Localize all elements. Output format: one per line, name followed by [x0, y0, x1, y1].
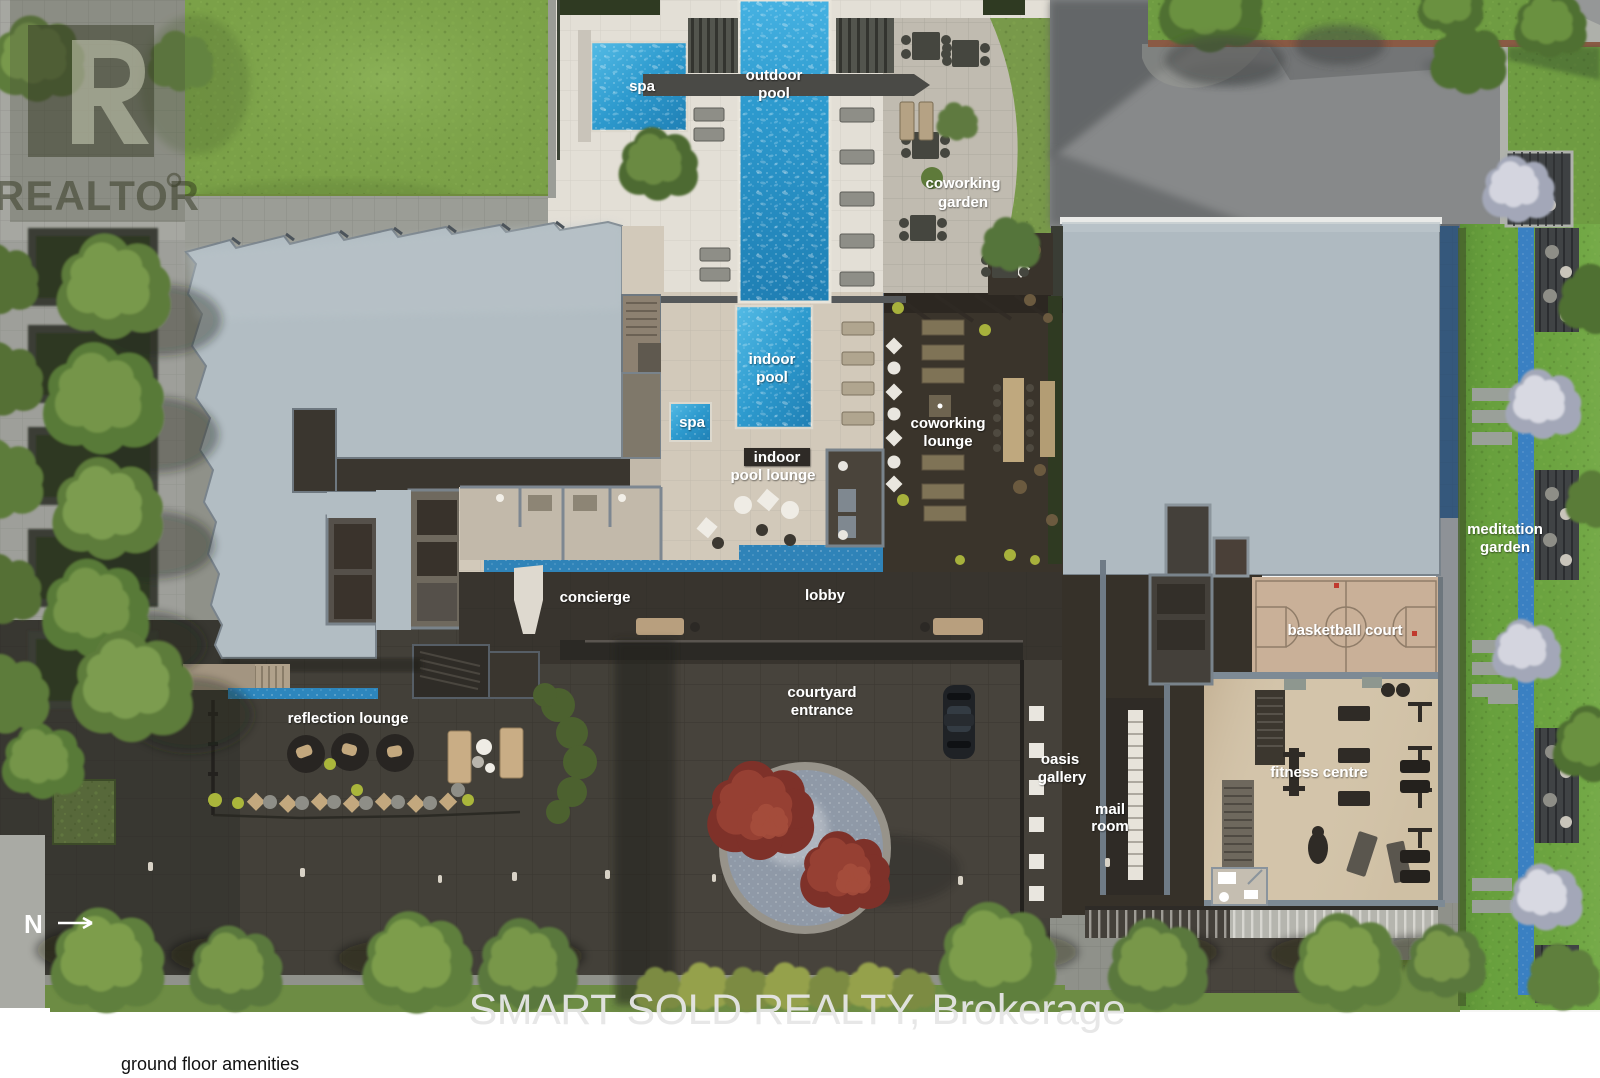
svg-text:fitness centre: fitness centre — [1270, 764, 1368, 781]
svg-text:garden: garden — [938, 194, 988, 211]
svg-text:pool lounge: pool lounge — [731, 467, 816, 484]
svg-text:meditation: meditation — [1467, 521, 1543, 538]
svg-text:garden: garden — [1480, 539, 1530, 556]
svg-text:coworking: coworking — [910, 415, 985, 432]
svg-text:ground floor amenities: ground floor amenities — [121, 1054, 299, 1074]
svg-text:spa: spa — [679, 414, 706, 431]
svg-text:room: room — [1091, 818, 1129, 835]
svg-text:coworking: coworking — [925, 175, 1000, 192]
svg-text:pool: pool — [756, 369, 788, 386]
svg-text:spa: spa — [629, 78, 656, 95]
svg-text:courtyard: courtyard — [787, 684, 856, 701]
svg-text:pool: pool — [758, 85, 790, 102]
svg-text:indoor: indoor — [749, 351, 796, 368]
svg-text:gallery: gallery — [1038, 769, 1087, 786]
svg-text:concierge: concierge — [560, 589, 631, 606]
svg-text:outdoor: outdoor — [746, 67, 803, 84]
svg-text:lounge: lounge — [923, 433, 972, 450]
svg-text:indoor: indoor — [754, 449, 801, 466]
svg-text:mail: mail — [1095, 801, 1125, 818]
svg-text:oasis: oasis — [1041, 751, 1079, 768]
svg-text:REALTOR: REALTOR — [0, 172, 200, 219]
svg-text:lobby: lobby — [805, 587, 846, 604]
svg-text:basketball court: basketball court — [1287, 622, 1402, 639]
svg-text:reflection lounge: reflection lounge — [288, 710, 409, 727]
svg-text:SMART SOLD REALTY, Brokerage: SMART SOLD REALTY, Brokerage — [469, 986, 1126, 1034]
svg-text:N: N — [24, 909, 43, 939]
svg-text:entrance: entrance — [791, 702, 854, 719]
